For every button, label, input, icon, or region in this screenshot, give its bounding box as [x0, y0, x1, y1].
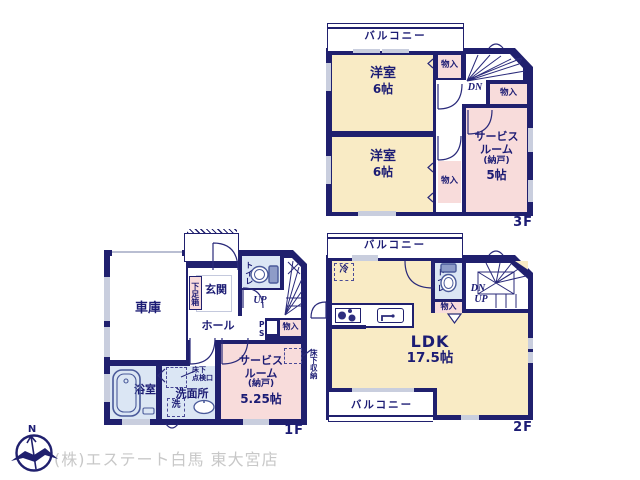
- stove: [335, 308, 361, 323]
- service-3f-l3: (納戸): [466, 157, 527, 167]
- porch-1f: [184, 233, 239, 262]
- service-3f-size: 5帖: [466, 169, 527, 182]
- west1-name: 洋室: [352, 67, 414, 81]
- toilet-1f-label: トイレ: [244, 259, 253, 287]
- floor-label-2f: 2F: [505, 421, 533, 435]
- hall-label: ホール: [196, 320, 240, 332]
- bath-label: 浴室: [130, 384, 160, 396]
- window-3f: [382, 49, 409, 53]
- west1-size: 6帖: [352, 83, 414, 96]
- closet-1f-label: 物入: [280, 323, 301, 332]
- window-1f: [122, 419, 150, 425]
- floor-label-3f: 3F: [505, 216, 533, 230]
- washroom-doorway-1f: [190, 340, 215, 366]
- room-ldk-2f-lower: [437, 388, 528, 415]
- window-2f: [352, 255, 378, 261]
- washroom-label: 洗面所: [170, 388, 214, 400]
- ps-label: PS: [257, 320, 265, 336]
- service-3f-l1: サービス: [466, 131, 527, 143]
- garage-label: 車庫: [122, 302, 174, 316]
- north-label: N: [24, 424, 40, 435]
- garage-side-opening: [104, 327, 110, 357]
- ldk-name: LDK: [400, 333, 460, 351]
- closet-2f-label: 物入: [435, 303, 462, 312]
- west2-name: 洋室: [352, 150, 414, 164]
- window-3f: [358, 211, 396, 216]
- window-1f: [104, 374, 110, 402]
- counter-wall: [330, 325, 366, 329]
- kitchen-sink: [377, 308, 404, 323]
- closet-c-label: 物入: [438, 177, 461, 186]
- balcony-3f-label: バルコニー: [327, 31, 464, 43]
- window-1f: [243, 419, 269, 425]
- window-2f: [461, 415, 479, 420]
- garage-side-opening: [104, 277, 110, 321]
- service-1f-l3: (納戸): [221, 380, 301, 390]
- dn-3f: DN: [462, 82, 488, 93]
- window-3f: [353, 49, 380, 53]
- closet-a-label: 物入: [438, 61, 461, 70]
- pipe-space-box: [266, 320, 278, 335]
- underfloor-inspection-hatch: [166, 367, 187, 388]
- ldk-size: 17.5帖: [398, 351, 462, 366]
- window-3f: [326, 63, 331, 91]
- north-compass-icon: [11, 436, 58, 471]
- window-3f: [326, 156, 331, 184]
- window-3f: [528, 128, 533, 152]
- service-1f-size: 5.25帖: [221, 393, 301, 406]
- company-watermark: (株)エステート白馬 東大宮店: [54, 446, 279, 470]
- up-1f: UP: [250, 295, 270, 306]
- floorplan-annotations: [0, 0, 640, 480]
- balcony-rail-line: [328, 27, 463, 29]
- entrance-label: 玄関: [200, 284, 232, 296]
- floor-label-1f: 1F: [276, 424, 304, 438]
- dn-2f: DN: [466, 283, 490, 294]
- floorplan-canvas: バルコニー 洋室 6帖 洋室 6帖 物入 物入 物入 サービス ルーム (納戸)…: [0, 0, 640, 480]
- west2-size: 6帖: [352, 166, 414, 179]
- service-3f-l2: ルーム: [466, 144, 527, 156]
- window-2f: [528, 352, 533, 363]
- up-2f: UP: [469, 294, 493, 305]
- balcony-2f-bottom-label: バルコニー: [334, 400, 430, 412]
- washer-label: 洗: [169, 401, 183, 411]
- closet-b-label: 物入: [490, 89, 527, 98]
- window-3f: [528, 180, 533, 202]
- fridge-label: 冷: [334, 266, 354, 276]
- inspection-label-2: 点検口: [192, 375, 220, 383]
- shoebox-label: 下足箱: [190, 279, 199, 309]
- toilet-2f-label: トイレ: [436, 264, 445, 296]
- service-1f-l1: サービス: [221, 355, 301, 367]
- balcony-rail-line: [329, 415, 433, 417]
- underfloor-storage-label: 床下収納: [309, 340, 317, 388]
- window-2f: [528, 338, 533, 349]
- balcony-2f-top-label: バルコニー: [327, 240, 463, 252]
- garage-door-line: [112, 251, 182, 253]
